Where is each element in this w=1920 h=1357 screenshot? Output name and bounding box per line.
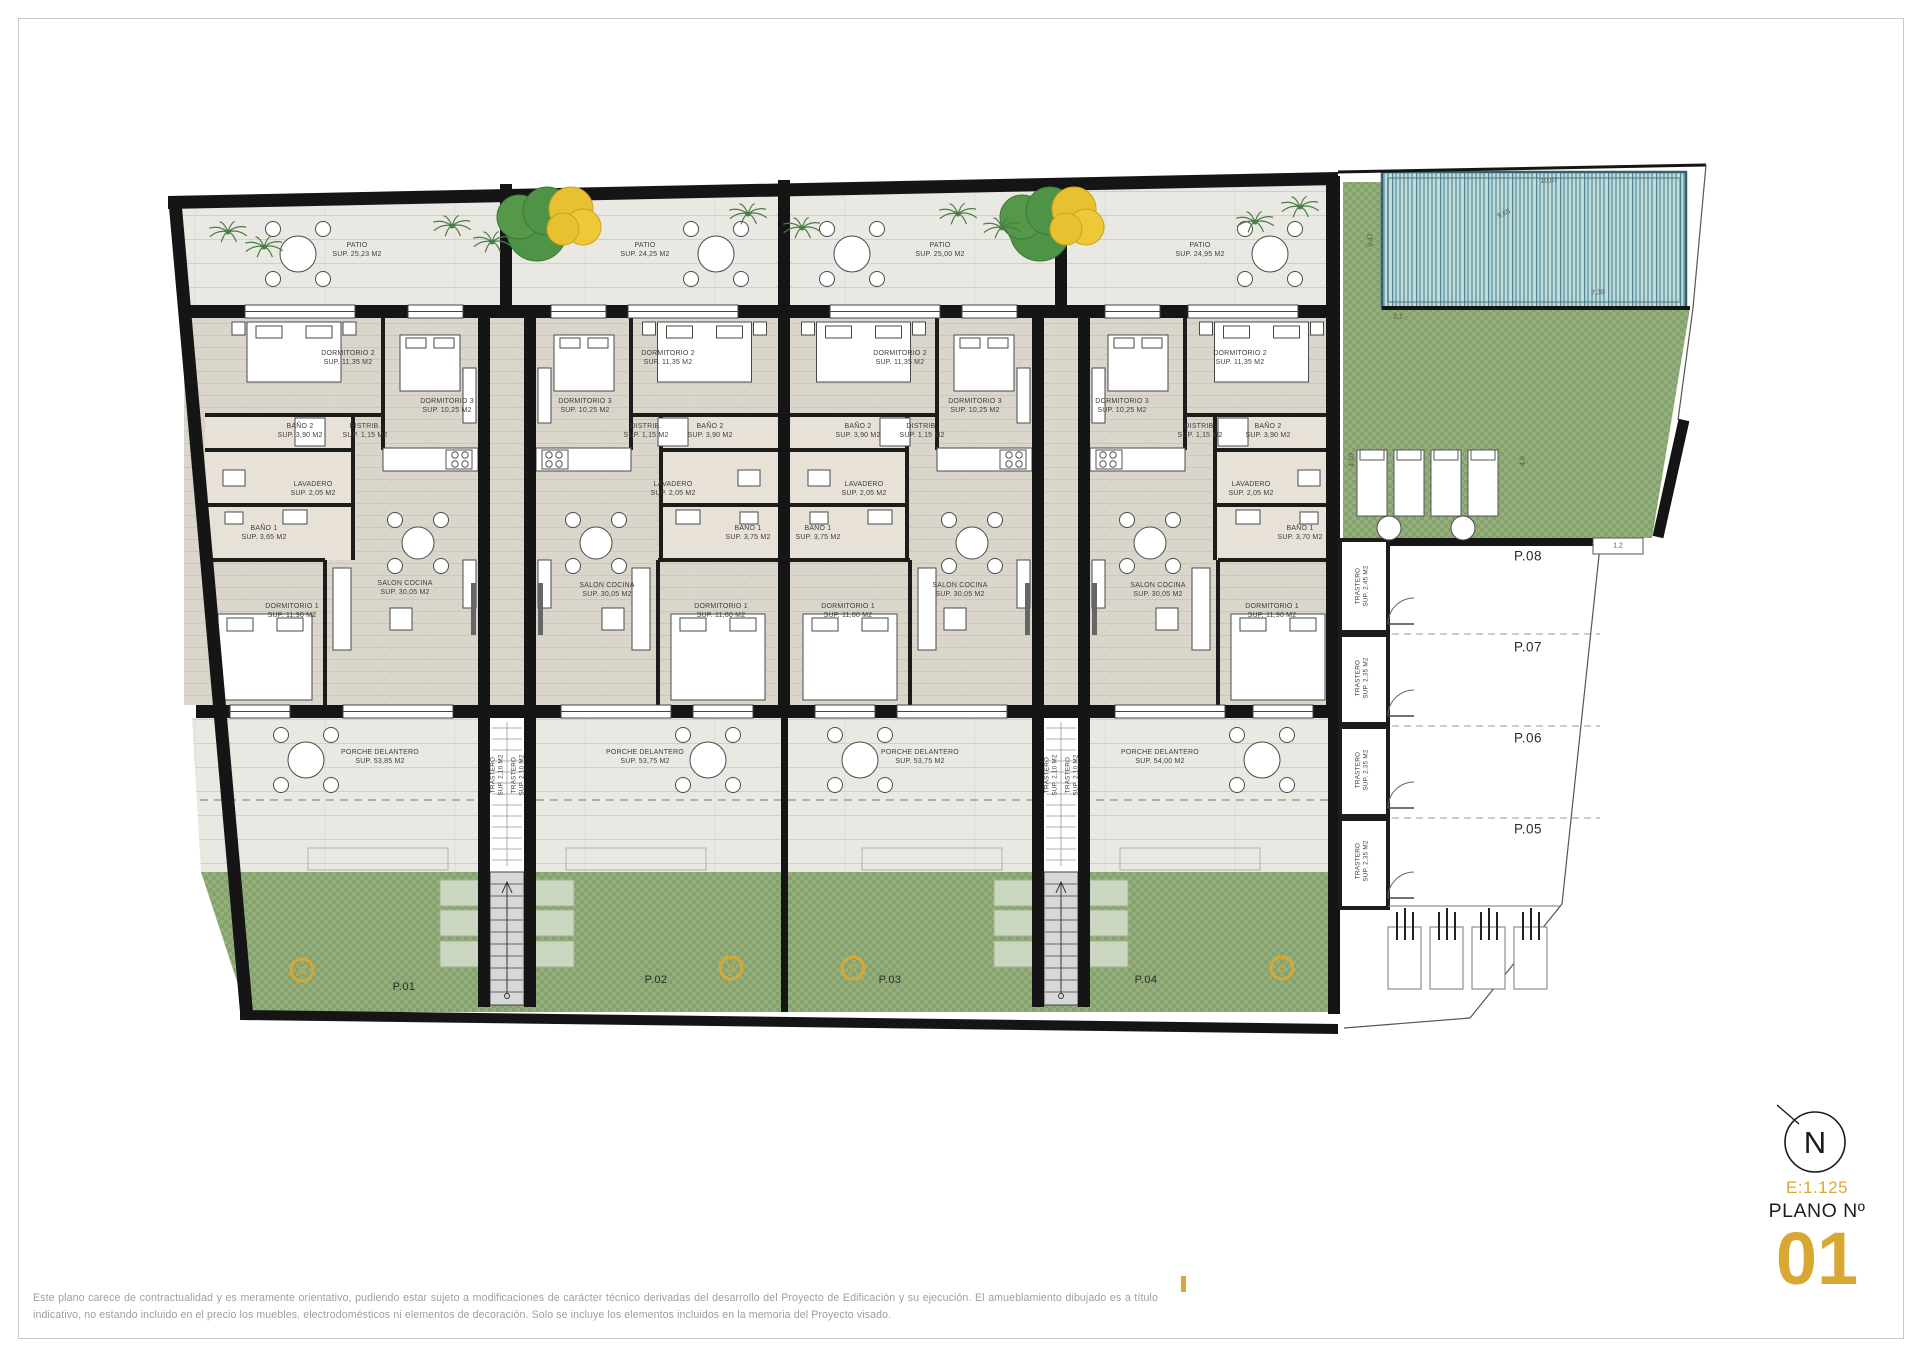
room-label: DISTRIB.SUP. 1,15 M2: [342, 422, 387, 440]
room-label: DORMITORIO 2SUP. 11,35 M2: [1213, 349, 1267, 367]
disclaimer: Este plano carece de contractualidad y e…: [33, 1290, 1158, 1324]
brand-tick: [1181, 1276, 1186, 1292]
room-label: BAÑO 1SUP. 3,75 M2: [795, 524, 840, 542]
unit-label: P.03: [879, 974, 902, 986]
dimension-label: 2,1: [1393, 314, 1403, 321]
room-label: DISTRIB.SUP. 1,15 M2: [623, 422, 668, 440]
room-label: DISTRIB.SUP. 1,15 M2: [899, 422, 944, 440]
storage-label: TRASTEROSUP. 2,10 M2: [510, 754, 525, 795]
parking-label: P.05: [1514, 822, 1542, 837]
dimension-label: 4,10: [1349, 453, 1356, 467]
north-letter: N: [1804, 1125, 1826, 1160]
room-label: DORMITORIO 1SUP. 11,90 M2: [265, 602, 319, 620]
room-label: PORCHE DELANTEROSUP. 53,75 M2: [606, 748, 684, 766]
parking-label: P.06: [1514, 731, 1542, 746]
floor-plan-sheet: N PATIOSUP. 25,23 M2DORMITORIO 2SUP. 11,…: [0, 0, 1920, 1357]
room-label: DORMITORIO 1SUP. 11,80 M2: [821, 602, 875, 620]
storage-label: TRASTEROSUP. 2,35 M2: [1354, 749, 1369, 790]
room-label: DORMITORIO 3SUP. 10,25 M2: [948, 397, 1002, 415]
room-label: SALON COCINASUP. 30,05 M2: [1130, 581, 1185, 599]
unit-label: P.01: [393, 981, 416, 993]
storage-label: TRASTEROSUP. 2,10 M2: [1064, 754, 1079, 795]
room-label: BAÑO 2SUP. 3,90 M2: [277, 422, 322, 440]
room-label: DORMITORIO 2SUP. 11,35 M2: [321, 349, 375, 367]
room-label: PATIOSUP. 24,25 M2: [620, 241, 669, 259]
room-label: PATIOSUP. 24,95 M2: [1175, 241, 1224, 259]
room-label: DISTRIB.SUP. 1,15 M2: [1177, 422, 1222, 440]
room-label: BAÑO 1SUP. 3,65 M2: [241, 524, 286, 542]
room-label: DORMITORIO 2SUP. 11,35 M2: [873, 349, 927, 367]
room-label: BAÑO 2SUP. 3,90 M2: [687, 422, 732, 440]
dimension-label: 9,47: [1368, 233, 1375, 247]
storage-label: TRASTEROSUP. 2,10 M2: [489, 754, 504, 795]
room-label: DORMITORIO 3SUP. 10,25 M2: [558, 397, 612, 415]
room-label: PATIOSUP. 25,23 M2: [332, 241, 381, 259]
room-label: DORMITORIO 1SUP. 11,80 M2: [694, 602, 748, 620]
disclaimer-line-2: indicativo, no estando incluido en el pr…: [33, 1307, 1158, 1324]
room-label: LAVADEROSUP. 2,05 M2: [650, 480, 695, 498]
room-label: LAVADEROSUP. 2,05 M2: [841, 480, 886, 498]
unit-label: P.02: [645, 974, 668, 986]
storage-label: TRASTEROSUP. 2,10 M2: [1043, 754, 1058, 795]
dimension-label: 7,39: [1591, 289, 1605, 297]
room-label: BAÑO 2SUP. 3,90 M2: [1245, 422, 1290, 440]
unit-label: P.04: [1135, 974, 1158, 986]
room-label: DORMITORIO 1SUP. 11,90 M2: [1245, 602, 1299, 620]
room-label: BAÑO 1SUP. 3,75 M2: [725, 524, 770, 542]
room-label: PORCHE DELANTEROSUP. 54,00 M2: [1121, 748, 1199, 766]
floor-plan-drawing: N: [0, 0, 1920, 1357]
room-label: DORMITORIO 3SUP. 10,25 M2: [1095, 397, 1149, 415]
room-label: BAÑO 2SUP. 3,90 M2: [835, 422, 880, 440]
dimension-label: 10,07: [1540, 177, 1558, 185]
room-label: SALON COCINASUP. 30,05 M2: [932, 581, 987, 599]
room-label: DORMITORIO 2SUP. 11,35 M2: [641, 349, 695, 367]
room-label: LAVADEROSUP. 2,05 M2: [290, 480, 335, 498]
dimension-label: 1,2: [1613, 543, 1623, 550]
disclaimer-line-1: Este plano carece de contractualidad y e…: [33, 1290, 1158, 1307]
room-label: PORCHE DELANTEROSUP. 53,75 M2: [881, 748, 959, 766]
sheet-number: 01: [1738, 1222, 1896, 1296]
room-label: PORCHE DELANTEROSUP. 53,85 M2: [341, 748, 419, 766]
storage-label: TRASTEROSUP. 2,45 M2: [1354, 565, 1369, 606]
scale-text: E:1.125: [1756, 1178, 1878, 1198]
parking-label: P.08: [1514, 549, 1542, 564]
parking-label: P.07: [1514, 640, 1542, 655]
swimming-pool: [1382, 172, 1686, 308]
room-label: PATIOSUP. 25,00 M2: [915, 241, 964, 259]
room-label: SALON COCINASUP. 30,05 M2: [377, 579, 432, 597]
room-label: DORMITORIO 3SUP. 10,25 M2: [420, 397, 474, 415]
north-arrow-icon: N: [1777, 1105, 1845, 1172]
room-label: BAÑO 1SUP. 3,70 M2: [1277, 524, 1322, 542]
room-label: LAVADEROSUP. 2,05 M2: [1228, 480, 1273, 498]
dimension-label: 4,6: [1520, 456, 1527, 466]
storage-label: TRASTEROSUP. 2,35 M2: [1354, 657, 1369, 698]
room-label: SALON COCINASUP. 30,05 M2: [579, 581, 634, 599]
storage-label: TRASTEROSUP. 2,35 M2: [1354, 840, 1369, 881]
